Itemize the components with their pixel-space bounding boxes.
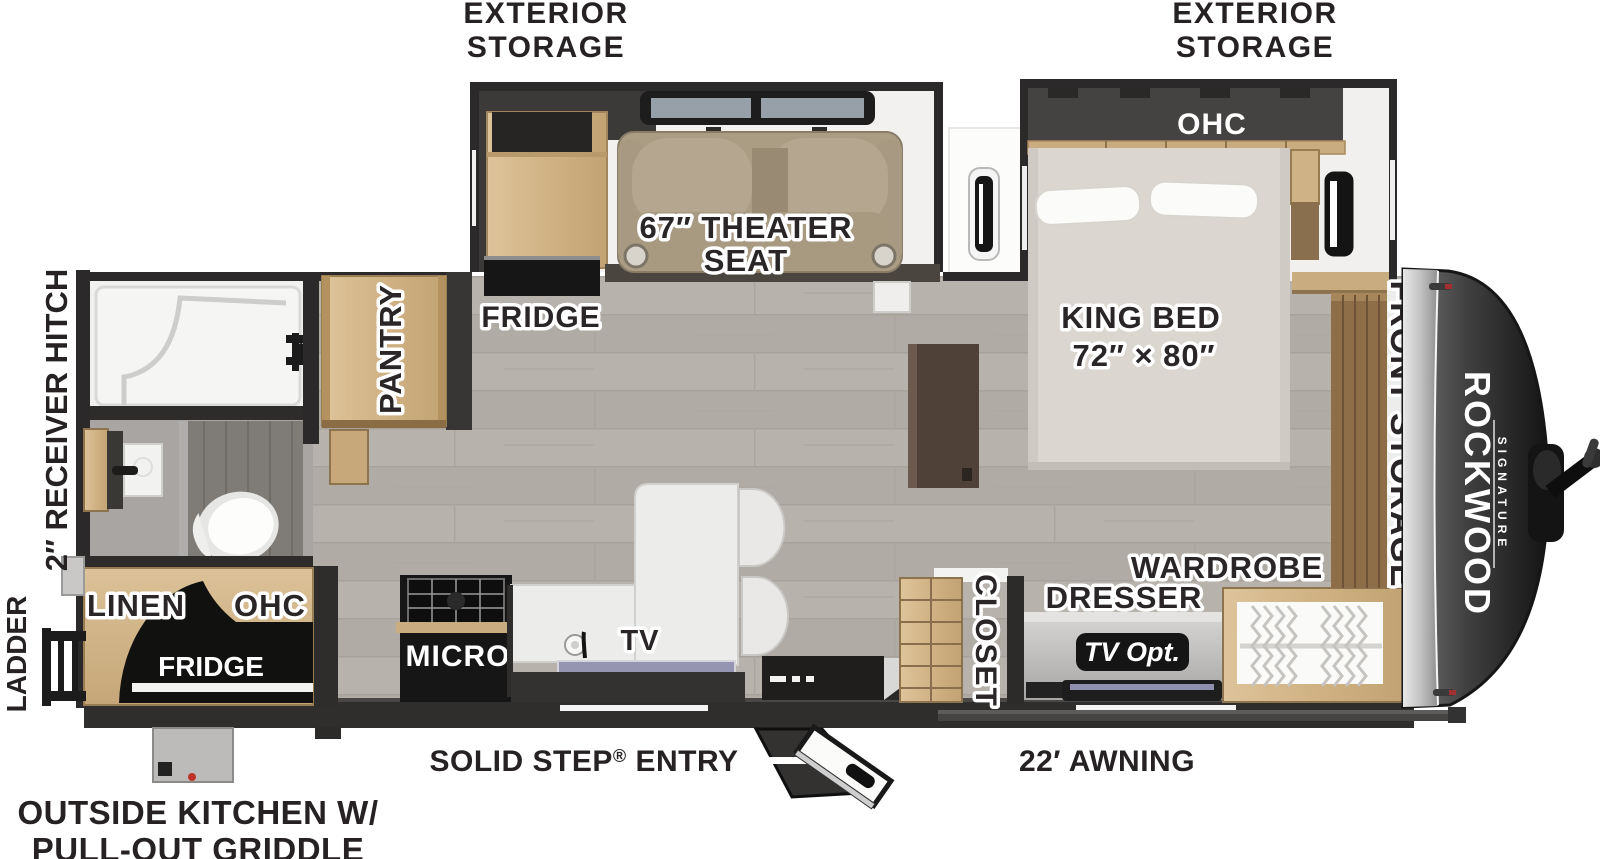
svg-text:OUTSIDE KITCHEN W/: OUTSIDE KITCHEN W/ [18,794,379,831]
svg-text:OHC: OHC [234,588,306,623]
svg-text:MICRO: MICRO [406,640,511,673]
svg-text:LADDER: LADDER [1,596,32,713]
svg-text:2″ RECEIVER HITCH: 2″ RECEIVER HITCH [39,269,74,572]
svg-text:STORAGE: STORAGE [1176,31,1334,64]
svg-text:TV: TV [620,625,659,657]
svg-text:PULL-OUT GRIDDLE: PULL-OUT GRIDDLE [32,831,364,859]
svg-text:DRESSER: DRESSER [1046,580,1203,615]
svg-text:SIGNATURE: SIGNATURE [1495,437,1509,552]
svg-text:KING BED: KING BED [1061,300,1221,335]
svg-text:FRIDGE: FRIDGE [481,301,600,334]
svg-text:22′ AWNING: 22′ AWNING [1019,745,1195,778]
svg-text:EXTERIOR: EXTERIOR [1172,0,1337,30]
svg-text:PANTRY: PANTRY [373,284,408,414]
svg-text:FRIDGE: FRIDGE [158,651,264,682]
svg-text:EXTERIOR: EXTERIOR [463,0,628,30]
svg-text:OHC: OHC [1177,108,1247,141]
svg-text:ROCKWOOD: ROCKWOOD [1457,371,1498,617]
svg-text:67″ THEATER: 67″ THEATER [639,210,852,245]
svg-text:72″ × 80″: 72″ × 80″ [1073,338,1216,373]
svg-text:TV Opt.: TV Opt. [1084,637,1180,667]
svg-text:SOLID STEP® ENTRY: SOLID STEP® ENTRY [429,745,738,778]
svg-text:SEAT: SEAT [704,243,788,278]
svg-text:LINEN: LINEN [87,588,185,623]
svg-text:STORAGE: STORAGE [467,31,625,64]
svg-text:WARDROBE: WARDROBE [1131,550,1323,585]
svg-text:CLOSET: CLOSET [969,574,1002,708]
